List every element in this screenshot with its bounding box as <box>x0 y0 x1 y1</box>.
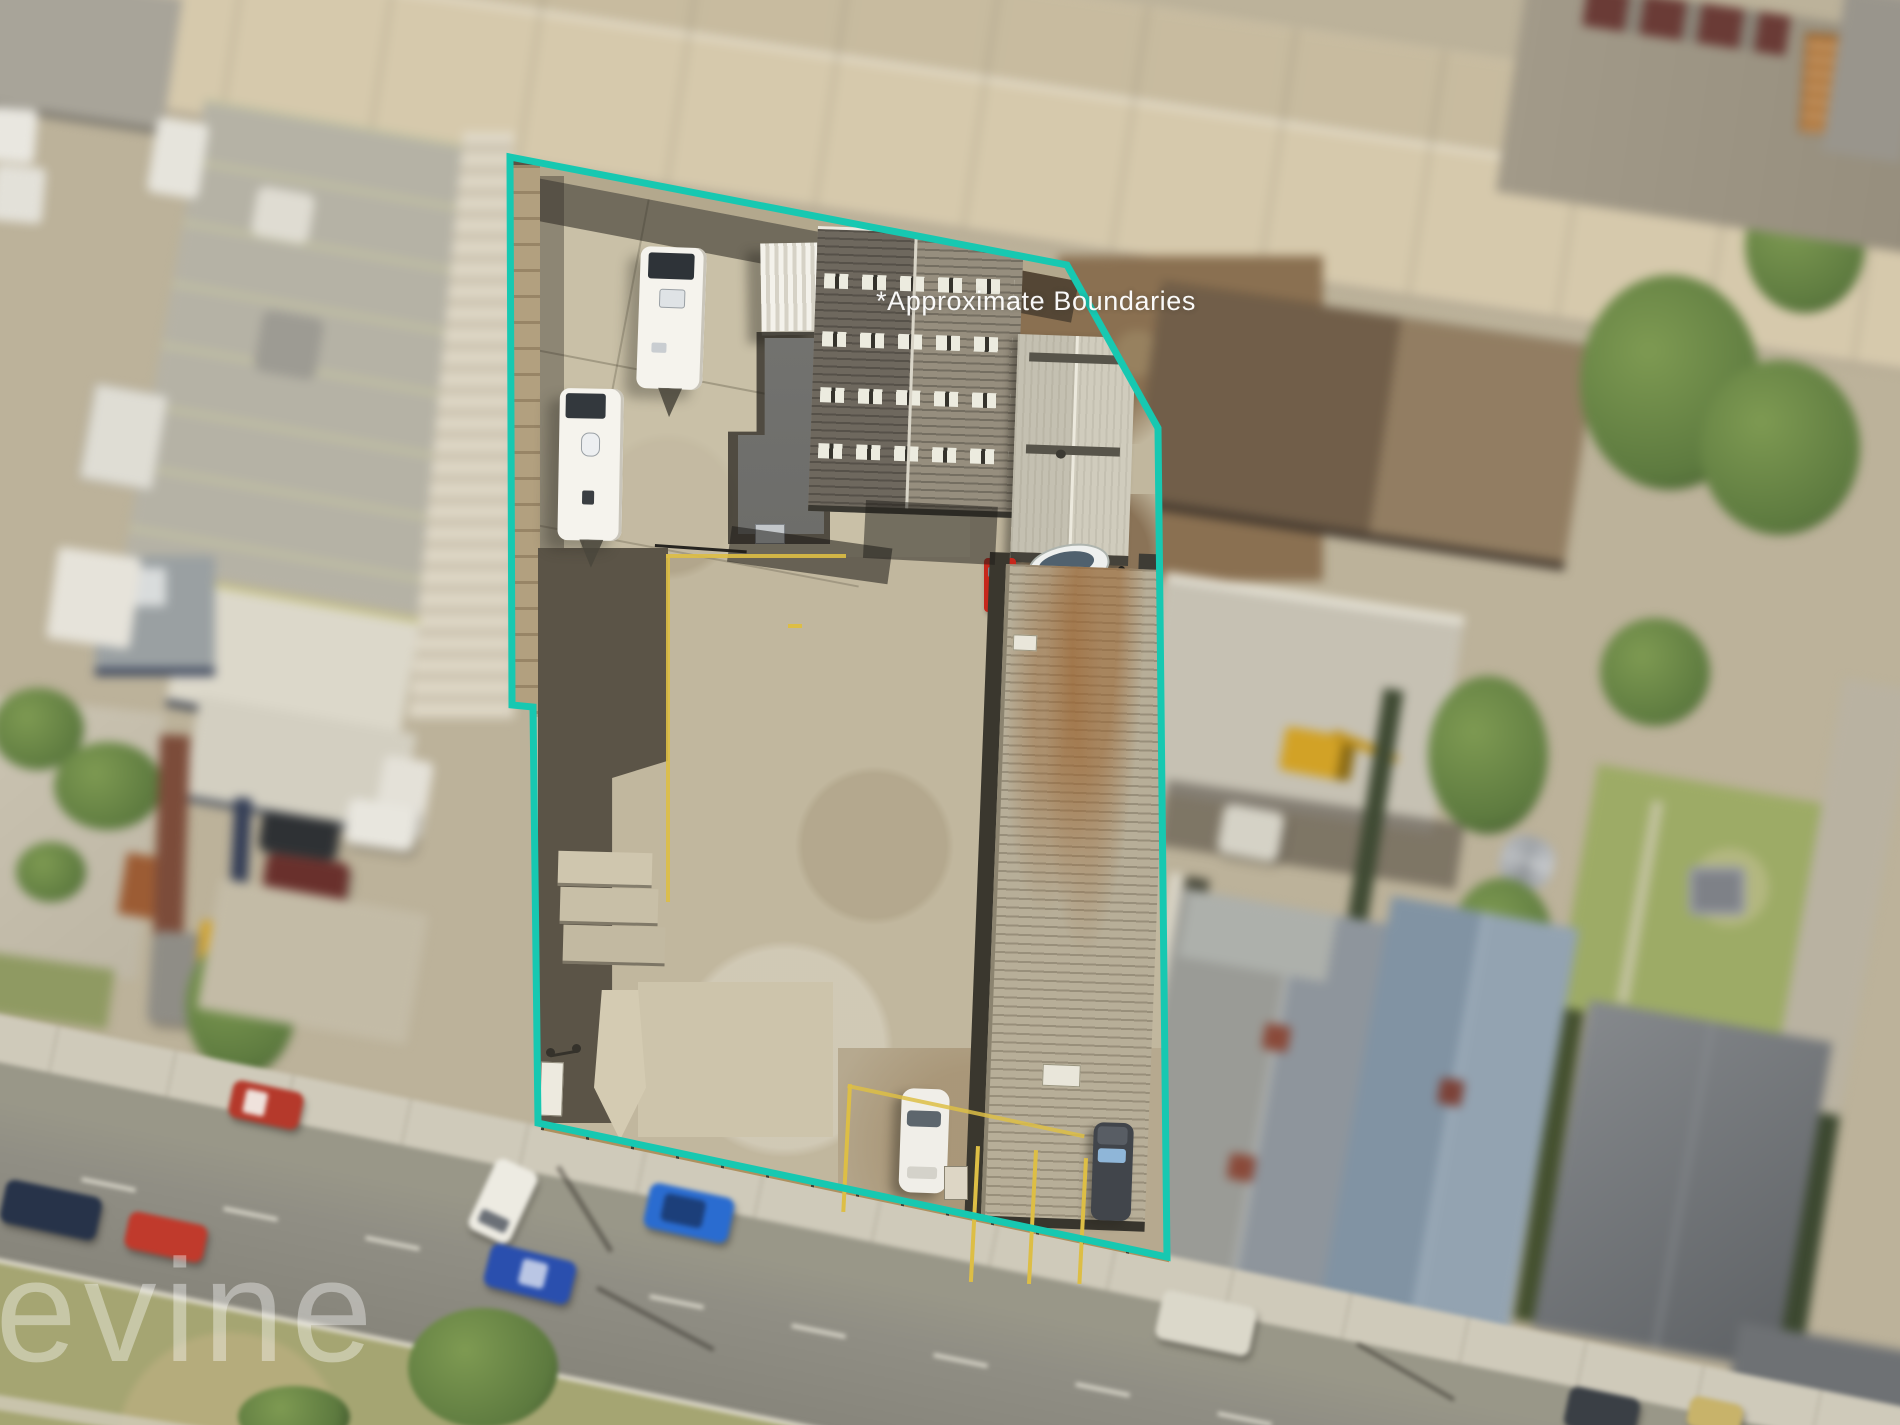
watermark-text: levine <box>0 1238 379 1384</box>
frontage-markings <box>0 0 1900 1425</box>
boundary-note-label: *Approximate Boundaries <box>876 286 1196 317</box>
aerial-photo: *Approximate Boundaries levine <box>0 0 1900 1425</box>
bay-line-3 <box>1027 1150 1038 1284</box>
kerb-strip-tan <box>541 1124 1170 1262</box>
bay-line-4 <box>1077 1158 1088 1284</box>
bay-line-top <box>847 1084 1085 1138</box>
